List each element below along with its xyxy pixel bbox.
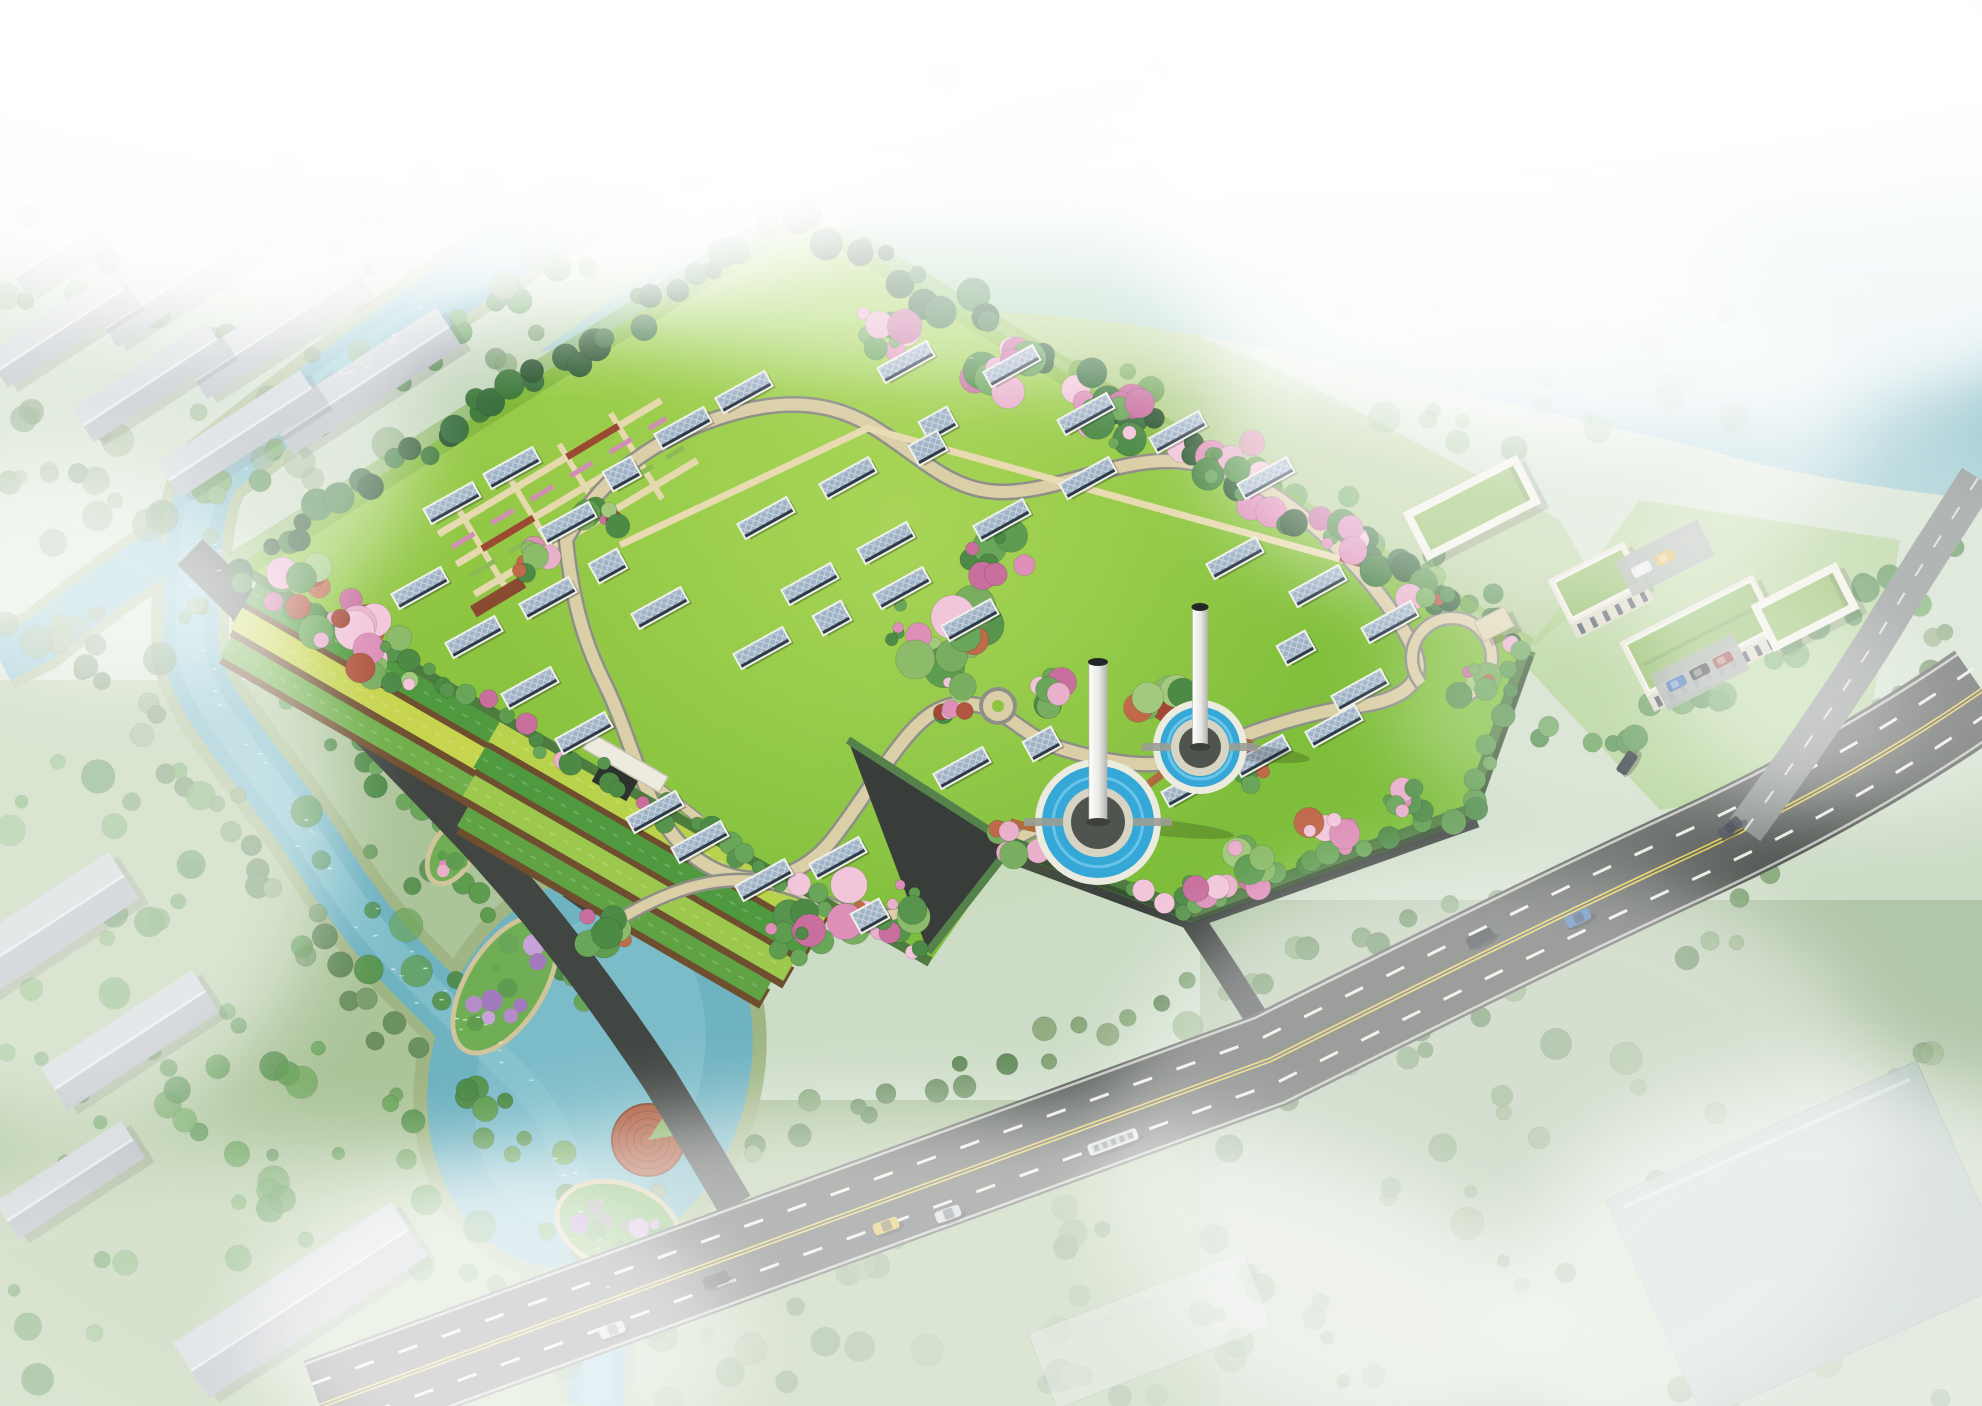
- shrub: [893, 622, 904, 633]
- shrub: [580, 909, 595, 924]
- tree: [423, 663, 436, 676]
- shrub: [795, 927, 808, 940]
- shrub: [773, 922, 795, 944]
- shrub: [1047, 683, 1070, 706]
- tree: [1920, 1042, 1944, 1066]
- shrub: [1249, 845, 1274, 870]
- path-node-grass: [992, 700, 1004, 712]
- shrub: [1000, 840, 1029, 869]
- tree: [363, 845, 377, 859]
- tree: [398, 649, 421, 672]
- shrub: [1014, 555, 1035, 576]
- tree: [1071, 1017, 1087, 1033]
- tree: [594, 328, 614, 348]
- shrub: [791, 949, 808, 966]
- shrub: [1183, 876, 1209, 902]
- tree: [401, 1110, 425, 1134]
- tree: [497, 1093, 513, 1109]
- tower-cylinder: [1193, 607, 1208, 747]
- tree: [382, 1095, 399, 1112]
- shrub: [1241, 775, 1260, 794]
- water-sparkle: [498, 1050, 502, 1052]
- tree: [173, 1108, 197, 1132]
- tree: [499, 708, 515, 724]
- tree: [925, 1079, 948, 1102]
- tree: [495, 369, 525, 399]
- water-sparkle: [500, 1062, 504, 1064]
- shrub: [1132, 682, 1164, 714]
- water-sparkle: [499, 1042, 503, 1044]
- tree: [389, 908, 423, 942]
- tree: [439, 682, 455, 698]
- shrub: [331, 609, 350, 628]
- water-sparkle: [459, 1029, 463, 1031]
- tree: [1355, 840, 1372, 857]
- tree: [473, 1128, 494, 1149]
- tree: [609, 781, 625, 797]
- tree: [432, 992, 451, 1011]
- tree: [516, 713, 538, 735]
- tree: [1041, 1054, 1057, 1070]
- tree: [1154, 893, 1175, 914]
- shrub: [984, 563, 1007, 586]
- shrub: [1228, 840, 1243, 855]
- shrub: [999, 821, 1019, 841]
- tree: [469, 882, 490, 903]
- shrub: [606, 514, 630, 538]
- water-sparkle: [443, 990, 447, 992]
- scene-svg: Aerial rendering of a green-roof park ov…: [0, 0, 1982, 1406]
- shrub: [345, 653, 375, 683]
- tree: [1032, 1017, 1056, 1041]
- water-sparkle: [376, 908, 380, 910]
- shrub: [591, 918, 622, 949]
- shrub: [381, 673, 401, 693]
- shrub: [1304, 825, 1316, 837]
- fog-blob: [1390, 560, 1910, 840]
- tree: [734, 843, 754, 863]
- shrub: [1327, 813, 1341, 827]
- shrub: [949, 673, 976, 700]
- tree: [364, 902, 380, 918]
- shrub: [885, 633, 898, 646]
- tree: [1441, 809, 1466, 834]
- shrub: [1125, 388, 1155, 418]
- water-sparkle: [455, 1018, 459, 1020]
- tree: [559, 752, 583, 776]
- shrub: [313, 632, 329, 648]
- water-sparkle: [440, 999, 444, 1001]
- aerial-site-rendering: Aerial rendering of a green-roof park ov…: [0, 0, 1982, 1406]
- tree: [1119, 1009, 1136, 1026]
- water-sparkle: [529, 1080, 533, 1082]
- tree: [1730, 889, 1749, 908]
- tree: [401, 955, 433, 987]
- tree: [366, 1032, 384, 1050]
- tree: [408, 1037, 429, 1058]
- tree: [598, 757, 611, 770]
- tree: [952, 1056, 967, 1071]
- tree: [354, 955, 383, 984]
- water-sparkle: [463, 1019, 467, 1021]
- tree: [912, 941, 928, 957]
- tree: [1132, 879, 1154, 901]
- tree: [421, 447, 439, 465]
- shrub: [956, 703, 973, 720]
- water-sparkle: [410, 951, 414, 953]
- water-sparkle: [476, 1017, 480, 1019]
- shrub: [1396, 804, 1409, 817]
- tree: [456, 1079, 477, 1100]
- tree: [440, 415, 469, 444]
- water-sparkle: [400, 975, 404, 977]
- tree: [520, 359, 543, 382]
- tree: [1097, 1023, 1119, 1045]
- tree: [404, 877, 422, 895]
- tree: [455, 684, 476, 705]
- shrub: [966, 542, 979, 555]
- tree: [311, 1041, 325, 1055]
- shrub: [1109, 438, 1119, 448]
- tree: [480, 907, 495, 922]
- tree: [383, 1012, 406, 1035]
- tree: [285, 1066, 318, 1099]
- tree: [808, 883, 828, 903]
- shrub: [512, 563, 526, 577]
- water-sparkle: [391, 969, 395, 971]
- tower-top-opening: [1192, 603, 1209, 611]
- tree: [1378, 826, 1401, 849]
- tree: [529, 732, 544, 747]
- shrub: [887, 899, 898, 910]
- tree: [473, 1096, 499, 1122]
- water-sparkle: [354, 927, 358, 929]
- tree: [356, 988, 378, 1010]
- shrub: [895, 880, 905, 890]
- water-sparkle: [374, 935, 378, 937]
- shrub: [765, 923, 777, 935]
- water-sparkle: [484, 1024, 488, 1026]
- shrub: [403, 678, 415, 690]
- tower-cylinder: [1089, 662, 1107, 822]
- shrub: [1123, 426, 1137, 440]
- tree: [364, 774, 388, 798]
- tower-top-opening: [1088, 658, 1108, 666]
- water-sparkle: [415, 1002, 419, 1004]
- tree: [996, 1053, 1017, 1074]
- shrub: [380, 641, 391, 652]
- shrub: [1405, 779, 1424, 798]
- tree: [953, 1075, 976, 1098]
- fog-blob: [1200, 230, 1860, 610]
- shrub: [896, 640, 935, 679]
- tree: [533, 746, 546, 759]
- shrub: [898, 896, 927, 925]
- tree: [328, 952, 354, 978]
- water-sparkle: [423, 968, 427, 970]
- tree: [480, 690, 498, 708]
